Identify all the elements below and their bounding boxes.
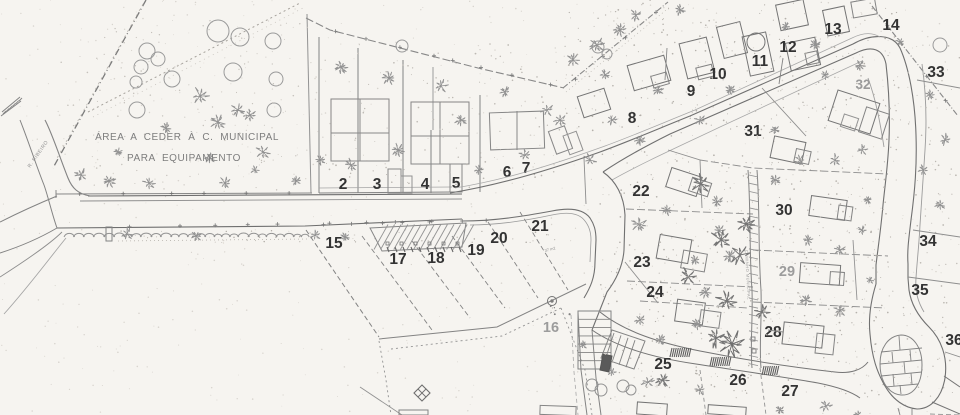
svg-text:PARA EQUIPAMENTO: PARA EQUIPAMENTO: [127, 153, 241, 164]
svg-text:28: 28: [764, 324, 782, 341]
svg-text:14: 14: [882, 17, 900, 34]
svg-text:20: 20: [490, 230, 507, 247]
svg-text:6: 6: [503, 164, 512, 181]
svg-text:8: 8: [628, 110, 637, 127]
svg-text:10: 10: [709, 66, 726, 83]
svg-text:ÁREA A CEDER À C. MUNICIPAL: ÁREA A CEDER À C. MUNICIPAL: [95, 130, 279, 143]
svg-text:19: 19: [467, 242, 485, 259]
svg-text:35: 35: [911, 282, 929, 299]
svg-text:16: 16: [543, 320, 559, 336]
svg-text:25: 25: [654, 356, 672, 373]
svg-text:33: 33: [927, 64, 945, 81]
svg-text:18: 18: [427, 250, 445, 267]
svg-text:2: 2: [339, 176, 348, 193]
svg-text:36: 36: [945, 332, 960, 349]
svg-text:21: 21: [531, 218, 549, 235]
svg-text:4: 4: [421, 176, 430, 193]
svg-text:27: 27: [781, 383, 798, 400]
svg-text:29: 29: [779, 264, 795, 280]
svg-text:15: 15: [325, 235, 343, 252]
svg-text:5: 5: [452, 175, 461, 192]
svg-text:30: 30: [775, 202, 792, 219]
svg-text:22: 22: [632, 183, 649, 200]
svg-text:31: 31: [744, 123, 762, 140]
svg-text:26: 26: [729, 372, 747, 389]
svg-text:3: 3: [373, 176, 382, 193]
svg-text:32: 32: [855, 77, 870, 92]
svg-text:12: 12: [779, 39, 796, 56]
svg-text:24: 24: [646, 284, 664, 301]
svg-text:34: 34: [919, 233, 937, 250]
svg-text:23: 23: [633, 254, 651, 271]
svg-text:17: 17: [389, 251, 406, 268]
svg-text:7: 7: [522, 160, 531, 177]
